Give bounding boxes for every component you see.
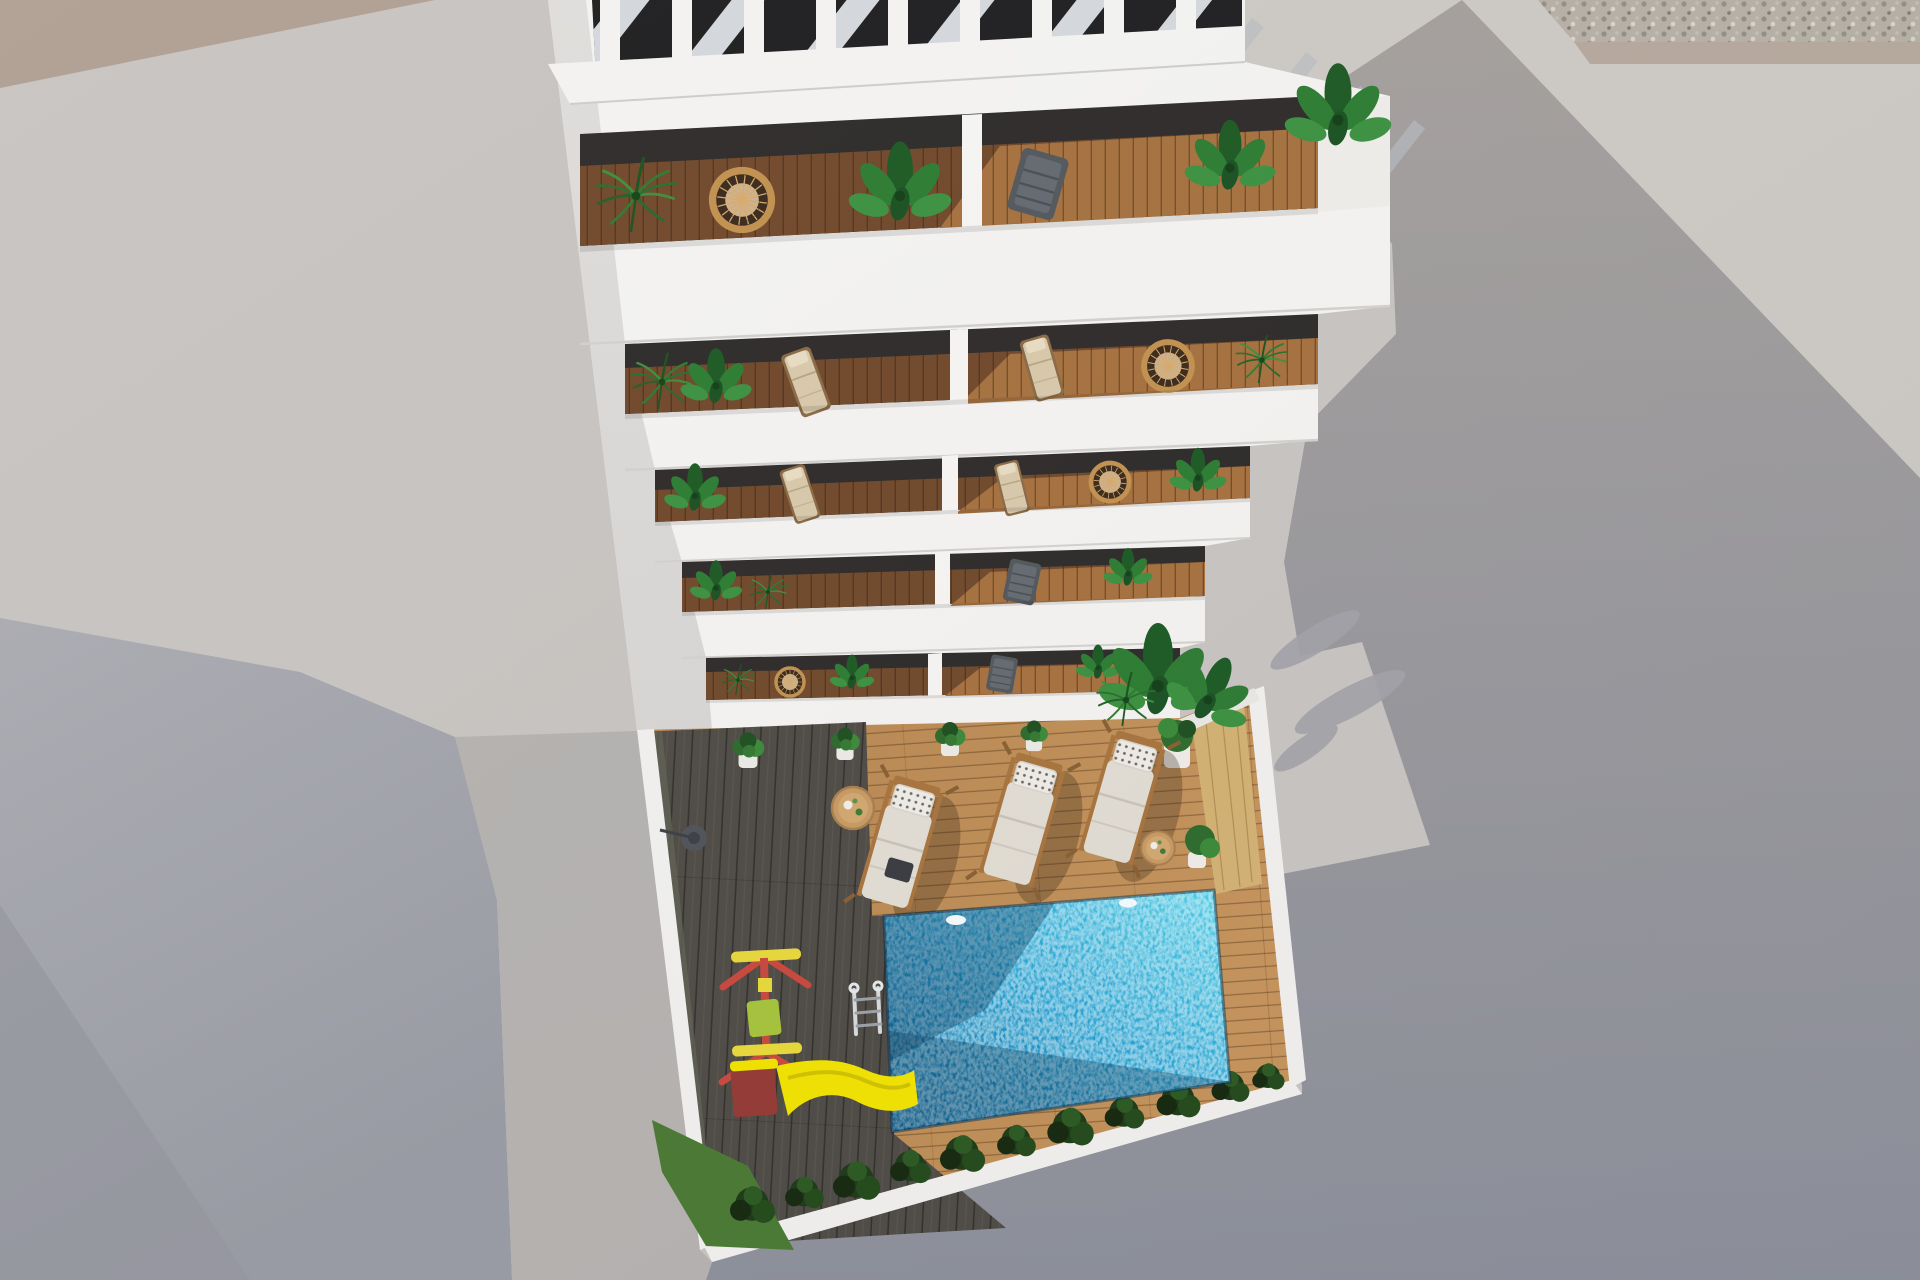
pool-glint-2 [1119, 899, 1137, 908]
tan-curb-top-right [1574, 42, 1920, 64]
side-table-2 [1141, 831, 1175, 865]
row4-divider [935, 551, 950, 606]
gravel-texture [1538, 0, 1920, 42]
swing-seat [746, 998, 782, 1037]
side-table-1 [832, 787, 874, 829]
scene-render [0, 0, 1920, 1280]
row5-divider [928, 653, 942, 697]
slide-platform [730, 1065, 777, 1118]
row2-divider [950, 329, 968, 408]
row3-divider [942, 455, 958, 515]
row1-divider [962, 114, 982, 228]
pool-glint-1 [946, 915, 966, 925]
render-canvas [0, 0, 1920, 1280]
